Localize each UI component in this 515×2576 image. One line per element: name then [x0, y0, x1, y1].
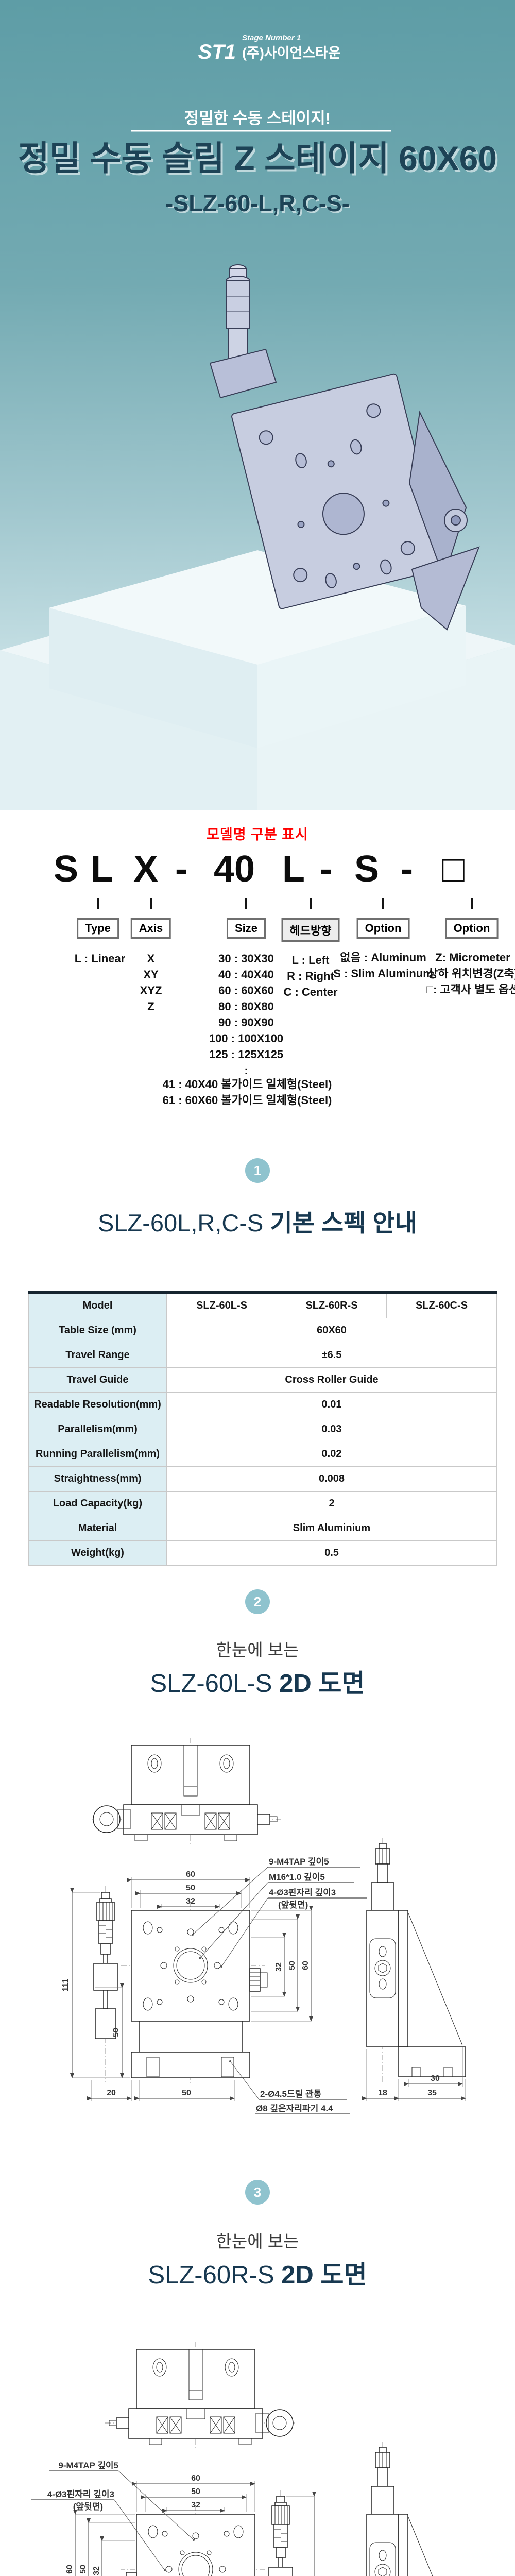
drawing-slz-60r-s: 60 50 32 60 50 32 111 50 50 20 9-M4TAP 깊…	[0, 2342, 515, 2576]
connector-tick	[150, 898, 152, 909]
code-letter: 40	[214, 848, 255, 891]
row-value: ±6.5	[167, 1343, 497, 1368]
list-item: 80 : 80X80	[174, 998, 318, 1014]
header-cell: Model	[29, 1292, 167, 1318]
hero-title: 정밀 수동 슬림 Z 스테이지 60X60	[18, 139, 497, 177]
model-naming-heading: 모델명 구분 표시	[0, 823, 515, 843]
dim-label: 32	[186, 1897, 195, 1906]
code-letter: X	[133, 848, 158, 891]
list-item: 90 : 90X90	[174, 1014, 318, 1030]
table-row: Weight(kg)0.5	[29, 1541, 497, 1566]
dim-label: 32	[191, 2501, 200, 2510]
callout-pin: 4-Ø3핀자리 깊이3	[269, 1888, 336, 1897]
hero-tagline: 정밀한 수동 스테이지!	[184, 109, 331, 127]
section-pre-3: 한눈에 보는	[0, 2228, 515, 2252]
table-row: Table Size (mm)60X60	[29, 1318, 497, 1343]
row-label: Table Size (mm)	[29, 1318, 167, 1343]
list-item: Z: Micrometer	[401, 950, 515, 965]
dim-label: 18	[378, 2089, 387, 2097]
row-label: Readable Resolution(mm)	[29, 1393, 167, 1417]
logo-st1: ST1	[198, 41, 236, 63]
header-cell: SLZ-60C-S	[387, 1292, 497, 1318]
table-row: Straightness(mm)0.008	[29, 1467, 497, 1492]
product-page: Stage Number 1 ST1 (주)사이언스타운 정밀한 수동 스테이지…	[0, 0, 515, 2576]
dim-label: 50	[191, 2487, 200, 2496]
dim-label: 50	[182, 2089, 191, 2097]
section-title-model: SLZ-60R-S	[148, 2261, 274, 2289]
table-row: Travel Range±6.5	[29, 1343, 497, 1368]
section-title-rest: 2D 도면	[281, 2261, 367, 2289]
row-label: Running Parallelism(mm)	[29, 1442, 167, 1467]
dim-label: 60	[191, 2474, 200, 2483]
header-cell: SLZ-60L-S	[167, 1292, 277, 1318]
row-value: Cross Roller Guide	[167, 1368, 497, 1393]
list-item: 상하 위치변경(Z축)	[401, 965, 515, 981]
option2-list: Z: Micrometer 상하 위치변경(Z축) □: 고객사 별도 옵션	[401, 950, 515, 997]
code-letter: □	[442, 848, 465, 891]
connector-tick	[310, 898, 312, 909]
spec-table: Model SLZ-60L-S SLZ-60R-S SLZ-60C-S Tabl…	[28, 1291, 497, 1566]
section-badge-1: 1	[245, 1158, 270, 1183]
dim-label: 60	[186, 1870, 195, 1879]
section-title-2: SLZ-60L-S 2D 도면	[0, 1663, 515, 1700]
size-note: 41 : 40X40 볼가이드 일체형(Steel)	[160, 1076, 335, 1092]
group-box-axis: Axis	[131, 918, 171, 939]
callout-pin: (앞뒷면)	[73, 2501, 103, 2512]
dim-label: 50	[112, 2028, 121, 2037]
section-title-rest: 기본 스펙 안내	[270, 1209, 417, 1236]
row-value: Slim Aluminium	[167, 1516, 497, 1541]
row-value: 60X60	[167, 1318, 497, 1343]
hero-model-range: -SLZ-60-L,R,C-S-	[165, 190, 349, 216]
code-letter: S	[54, 848, 78, 891]
connector-tick	[382, 898, 384, 909]
list-item: 100 : 100X100	[174, 1030, 318, 1046]
size-notes: 41 : 40X40 볼가이드 일체형(Steel) 61 : 60X60 볼가…	[160, 1076, 335, 1108]
dim-label: 35	[427, 2089, 437, 2097]
callout-tap: 9-M4TAP 깊이5	[269, 1857, 329, 1867]
logo-stage-number: Stage Number 1	[242, 33, 301, 42]
section-title-3: SLZ-60R-S 2D 도면	[0, 2255, 515, 2291]
callout-tap: 9-M4TAP 깊이5	[58, 2461, 118, 2470]
dim-label: 30	[431, 2074, 440, 2083]
row-value: 0.01	[167, 1393, 497, 1417]
code-letter: L	[282, 848, 305, 891]
table-row: Readable Resolution(mm)0.01	[29, 1393, 497, 1417]
row-value: 0.02	[167, 1442, 497, 1467]
code-letter: L	[91, 848, 113, 891]
dim-label: 32	[92, 2566, 101, 2575]
section-title-spec: SLZ-60L,R,C-S 기본 스펙 안내	[0, 1203, 515, 1239]
group-box-option2: Option	[445, 918, 499, 939]
group-box-option1: Option	[357, 918, 410, 939]
table-header-row: Model SLZ-60L-S SLZ-60R-S SLZ-60C-S	[29, 1292, 497, 1318]
list-item: C : Center	[238, 984, 383, 1000]
row-label: Material	[29, 1516, 167, 1541]
dim-label: 50	[186, 1884, 195, 1892]
size-note: 61 : 60X60 볼가이드 일체형(Steel)	[160, 1092, 335, 1108]
group-box-type: Type	[77, 918, 119, 939]
table-row: Parallelism(mm)0.03	[29, 1417, 497, 1442]
group-box-head-direction: 헤드방향	[282, 918, 340, 942]
code-letter: -	[320, 848, 332, 891]
connector-tick	[471, 898, 473, 909]
dim-label: 60	[65, 2565, 74, 2574]
row-label: Travel Guide	[29, 1368, 167, 1393]
row-value: 0.008	[167, 1467, 497, 1492]
dim-label: 111	[61, 1978, 70, 1991]
row-value: 0.5	[167, 1541, 497, 1566]
dim-label: 20	[107, 2089, 116, 2097]
section-title-rest: 2D 도면	[279, 1670, 365, 1698]
row-value: 2	[167, 1492, 497, 1516]
drawing-slz-60l-s: 60 50 32 111 50 32 50 60 20 50 9-M4TAP 깊…	[0, 1738, 515, 2119]
dim-label: 32	[274, 1962, 283, 1972]
section-title-model: SLZ-60L,R,C-S	[98, 1209, 263, 1236]
connector-tick	[245, 898, 247, 909]
callout-m16: M16*1.0 깊이5	[269, 1872, 325, 1882]
section-title-model: SLZ-60L-S	[150, 1670, 272, 1698]
dim-label: 60	[301, 1961, 310, 1970]
table-row: Load Capacity(kg)2	[29, 1492, 497, 1516]
row-label: Straightness(mm)	[29, 1467, 167, 1492]
code-letter: -	[401, 848, 413, 891]
list-item: □: 고객사 별도 옵션	[401, 981, 515, 997]
row-label: Weight(kg)	[29, 1541, 167, 1566]
callout-drill: Ø8 깊은자리파기 4.4	[256, 2104, 333, 2113]
row-value: 0.03	[167, 1417, 497, 1442]
section-pre-2: 한눈에 보는	[0, 1636, 515, 1661]
list-item: 125 : 125X125	[174, 1046, 318, 1062]
logo-company: (주)사이언스타운	[242, 45, 341, 61]
code-letter: S	[354, 848, 379, 891]
row-label: Parallelism(mm)	[29, 1417, 167, 1442]
row-label: Load Capacity(kg)	[29, 1492, 167, 1516]
table-row: MaterialSlim Aluminium	[29, 1516, 497, 1541]
callout-pin: 4-Ø3핀자리 깊이3	[47, 2489, 114, 2499]
connector-tick	[97, 898, 99, 909]
table-row: Travel GuideCross Roller Guide	[29, 1368, 497, 1393]
callout-pin: (앞뒷면)	[278, 1900, 308, 1910]
table-row: Running Parallelism(mm)0.02	[29, 1442, 497, 1467]
dim-label: 50	[288, 1961, 297, 1970]
callout-drill: 2-Ø4.5드릴 관통	[260, 2089, 322, 2099]
section-badge-3: 3	[245, 2180, 270, 2205]
hero-banner: Stage Number 1 ST1 (주)사이언스타운 정밀한 수동 스테이지…	[0, 0, 515, 810]
group-box-size: Size	[227, 918, 266, 939]
section-badge-2: 2	[245, 1589, 270, 1614]
row-label: Travel Range	[29, 1343, 167, 1368]
code-letter: -	[175, 848, 187, 891]
dim-label: 50	[79, 2565, 88, 2574]
header-cell: SLZ-60R-S	[277, 1292, 387, 1318]
